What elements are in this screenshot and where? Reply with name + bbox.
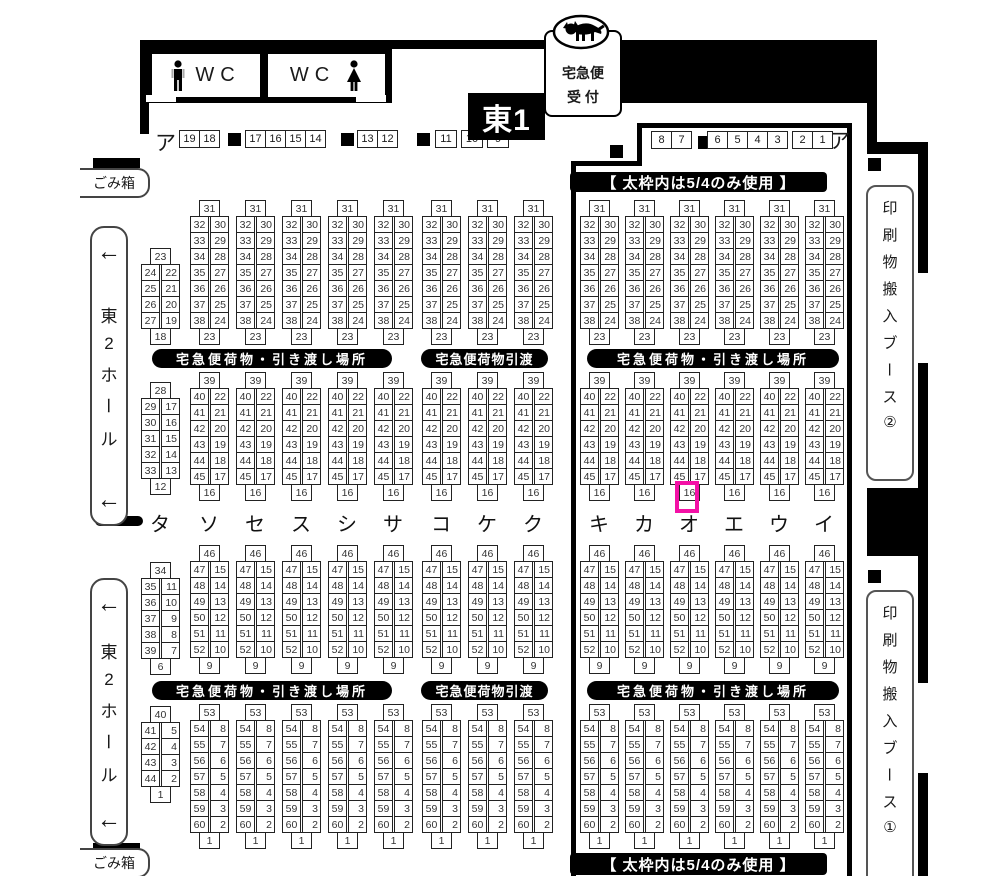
wc-room-women: WC bbox=[268, 54, 385, 97]
booth-cell: 15 bbox=[600, 561, 619, 578]
booth-cell: 38 bbox=[625, 312, 644, 329]
booth-cell: 27 bbox=[141, 312, 160, 329]
thick-frame-top bbox=[637, 123, 852, 128]
left-arrow-icon: ← bbox=[97, 484, 121, 516]
column-label: ケ bbox=[477, 508, 497, 537]
booth-cell: 56 bbox=[190, 752, 209, 769]
booth-cell: 37 bbox=[374, 296, 393, 313]
booth-cell: 19 bbox=[735, 436, 754, 453]
booth-cell: 37 bbox=[328, 296, 347, 313]
booth-cell: 45 bbox=[282, 468, 301, 485]
booth-cell: 30 bbox=[534, 216, 553, 233]
booth-cell: 7 bbox=[645, 736, 664, 753]
booth-cell: 28 bbox=[210, 248, 229, 265]
row-a-separator bbox=[417, 133, 430, 146]
booth-cell: 10 bbox=[348, 641, 367, 658]
booth-cell: 50 bbox=[760, 609, 779, 626]
booth-cell-bottom: 23 bbox=[383, 328, 404, 345]
booth-cell: 13 bbox=[645, 593, 664, 610]
booth-cell: 24 bbox=[141, 264, 160, 281]
booth-cell: 11 bbox=[690, 625, 709, 642]
booth-cell: 31 bbox=[141, 430, 160, 447]
booth-cell: 15 bbox=[161, 430, 180, 447]
booth-cell: 33 bbox=[760, 232, 779, 249]
booth-cell: 28 bbox=[256, 248, 275, 265]
booth-cell: 11 bbox=[394, 625, 413, 642]
booth-cell: 22 bbox=[645, 388, 664, 405]
booth-cell: 57 bbox=[328, 768, 347, 785]
booth-cell: 8 bbox=[256, 720, 275, 737]
booth-cell: 28 bbox=[645, 248, 664, 265]
booth-cell: 20 bbox=[302, 420, 321, 437]
booth-cell: 57 bbox=[422, 768, 441, 785]
booth-cell: 44 bbox=[514, 452, 533, 469]
row-a-right-group-1: 87 bbox=[652, 131, 692, 149]
booth-cell: 60 bbox=[670, 816, 689, 833]
booth-cell: 54 bbox=[580, 720, 599, 737]
booth-cell: 25 bbox=[645, 296, 664, 313]
column-label: ス bbox=[291, 508, 311, 537]
booth-cell: 18 bbox=[302, 452, 321, 469]
booth-cell: 26 bbox=[534, 280, 553, 297]
booth-cell: 11 bbox=[780, 625, 799, 642]
booth-cell: 44 bbox=[715, 452, 734, 469]
booth-cell: 5 bbox=[348, 768, 367, 785]
booth-cell: 7 bbox=[690, 736, 709, 753]
booth-cell: 47 bbox=[374, 561, 393, 578]
booth-cell: 29 bbox=[141, 398, 160, 415]
booth-cell: 17 bbox=[645, 468, 664, 485]
booth-cell-bottom: 1 bbox=[383, 832, 404, 849]
booth-cell: 55 bbox=[805, 736, 824, 753]
booth-cell-bottom: 23 bbox=[337, 328, 358, 345]
booth-cell: 30 bbox=[780, 216, 799, 233]
booth-cell: 38 bbox=[670, 312, 689, 329]
booth-cell: 12 bbox=[442, 609, 461, 626]
booth-cell: 20 bbox=[690, 420, 709, 437]
booth-cell: 19 bbox=[534, 436, 553, 453]
pillar-right-mid bbox=[868, 570, 881, 583]
wc-door-left bbox=[146, 95, 176, 102]
booth-cell: 13 bbox=[210, 593, 229, 610]
booth-cell: 55 bbox=[715, 736, 734, 753]
booth-cell: 15 bbox=[488, 561, 507, 578]
booth-cell: 60 bbox=[805, 816, 824, 833]
booth-cell: 11 bbox=[256, 625, 275, 642]
hall-title: 東1 bbox=[468, 93, 545, 140]
booth-cell: 24 bbox=[348, 312, 367, 329]
booth-cell: 17 bbox=[302, 468, 321, 485]
booth-cell: 55 bbox=[328, 736, 347, 753]
booth-cell: 2 bbox=[488, 816, 507, 833]
booth-cell: 8 bbox=[780, 720, 799, 737]
booth-cell: 7 bbox=[161, 642, 180, 659]
booth-cell: 58 bbox=[282, 784, 301, 801]
booth-cell: 40 bbox=[236, 388, 255, 405]
delivery-bar-mid-top: 宅急便荷物引渡 bbox=[421, 349, 548, 368]
booth-cell-top: 53 bbox=[431, 704, 452, 721]
booth-cell-bottom: 16 bbox=[634, 484, 655, 501]
booth-cell-bottom: 23 bbox=[523, 328, 544, 345]
booth-cell: 2 bbox=[780, 816, 799, 833]
booth-cell: 55 bbox=[422, 736, 441, 753]
booth-cell: 59 bbox=[514, 800, 533, 817]
booth-cell: 21 bbox=[534, 404, 553, 421]
booth-cell: 56 bbox=[805, 752, 824, 769]
left-arrow-icon: ← bbox=[97, 588, 121, 620]
booth-cell: 35 bbox=[625, 264, 644, 281]
booth-cell: 60 bbox=[328, 816, 347, 833]
booth-cell: 26 bbox=[442, 280, 461, 297]
booth-cell: 45 bbox=[468, 468, 487, 485]
booth-cell: 60 bbox=[760, 816, 779, 833]
booth-cell: 11 bbox=[735, 625, 754, 642]
booth-cell: 42 bbox=[422, 420, 441, 437]
booth-cell: 15 bbox=[690, 561, 709, 578]
black-cat-logo bbox=[551, 12, 611, 52]
booth-cell: 44 bbox=[670, 452, 689, 469]
row-a-cell: 17 bbox=[245, 130, 266, 148]
booth-cell: 13 bbox=[735, 593, 754, 610]
booth-cell: 54 bbox=[282, 720, 301, 737]
row-a-separator bbox=[341, 133, 354, 146]
booth-cell: 22 bbox=[600, 388, 619, 405]
booth-cell: 24 bbox=[735, 312, 754, 329]
booth-cell: 54 bbox=[805, 720, 824, 737]
booth-cell: 57 bbox=[670, 768, 689, 785]
booth-cell: 59 bbox=[468, 800, 487, 817]
booth-cell: 21 bbox=[780, 404, 799, 421]
booth-cell: 59 bbox=[282, 800, 301, 817]
booth-cell-top: 46 bbox=[523, 545, 544, 562]
booth-cell-bottom: 23 bbox=[477, 328, 498, 345]
booth-cell-bottom: 1 bbox=[679, 832, 700, 849]
booth-cell: 45 bbox=[580, 468, 599, 485]
trash-label-top: ごみ箱 bbox=[80, 168, 150, 198]
booth-cell: 36 bbox=[190, 280, 209, 297]
booth-cell: 20 bbox=[488, 420, 507, 437]
sign-char: 入 bbox=[882, 710, 897, 731]
booth-cell: 28 bbox=[825, 248, 844, 265]
booth-cell: 45 bbox=[374, 468, 393, 485]
booth-cell: 3 bbox=[825, 800, 844, 817]
booth-cell: 24 bbox=[394, 312, 413, 329]
booth-cell: 48 bbox=[625, 577, 644, 594]
sign-char: 2 bbox=[104, 334, 113, 354]
booth-cell: 38 bbox=[580, 312, 599, 329]
booth-cell: 17 bbox=[600, 468, 619, 485]
booth-cell: 20 bbox=[442, 420, 461, 437]
sign-char: 入 bbox=[882, 305, 897, 326]
booth-cell: 49 bbox=[760, 593, 779, 610]
booth-cell: 7 bbox=[600, 736, 619, 753]
booth-cell: 12 bbox=[348, 609, 367, 626]
booth-cell: 59 bbox=[625, 800, 644, 817]
print-booth-2-sign: 印刷物搬入ブース② bbox=[866, 185, 914, 481]
booth-cell-bottom: 23 bbox=[291, 328, 312, 345]
booth-cell: 57 bbox=[282, 768, 301, 785]
booth-cell: 37 bbox=[580, 296, 599, 313]
booth-cell: 59 bbox=[715, 800, 734, 817]
booth-cell: 39 bbox=[141, 642, 160, 659]
booth-cell: 10 bbox=[302, 641, 321, 658]
booth-cell: 48 bbox=[670, 577, 689, 594]
booth-cell: 3 bbox=[256, 800, 275, 817]
booth-cell: 17 bbox=[825, 468, 844, 485]
booth-cell: 60 bbox=[236, 816, 255, 833]
booth-cell: 35 bbox=[328, 264, 347, 281]
booth-cell: 49 bbox=[625, 593, 644, 610]
booth-cell-top: 39 bbox=[679, 372, 700, 389]
booth-cell: 19 bbox=[645, 436, 664, 453]
booth-cell: 15 bbox=[394, 561, 413, 578]
booth-cell-top: 31 bbox=[245, 200, 266, 217]
booth-cell: 21 bbox=[825, 404, 844, 421]
booth-cell: 38 bbox=[715, 312, 734, 329]
booth-cell: 42 bbox=[715, 420, 734, 437]
booth-cell: 22 bbox=[735, 388, 754, 405]
booth-cell-bottom: 1 bbox=[814, 832, 835, 849]
booth-cell: 6 bbox=[600, 752, 619, 769]
booth-cell: 58 bbox=[468, 784, 487, 801]
booth-cell-bottom: 9 bbox=[291, 657, 312, 674]
booth-cell: 18 bbox=[256, 452, 275, 469]
booth-cell: 19 bbox=[825, 436, 844, 453]
booth-cell: 4 bbox=[600, 784, 619, 801]
booth-cell: 17 bbox=[394, 468, 413, 485]
booth-cell: 60 bbox=[580, 816, 599, 833]
booth-cell: 50 bbox=[328, 609, 347, 626]
booth-cell-bottom: 16 bbox=[245, 484, 266, 501]
booth-cell-bottom: 16 bbox=[477, 484, 498, 501]
booth-cell: 6 bbox=[442, 752, 461, 769]
booth-cell: 35 bbox=[760, 264, 779, 281]
booth-cell: 43 bbox=[805, 436, 824, 453]
booth-cell: 21 bbox=[302, 404, 321, 421]
booth-cell: 33 bbox=[580, 232, 599, 249]
row-a-right-group-3: 21 bbox=[793, 131, 833, 149]
booth-cell: 5 bbox=[161, 722, 180, 739]
booth-cell: 57 bbox=[760, 768, 779, 785]
booth-cell: 4 bbox=[735, 784, 754, 801]
booth-cell: 21 bbox=[488, 404, 507, 421]
booth-cell: 12 bbox=[690, 609, 709, 626]
booth-cell: 29 bbox=[600, 232, 619, 249]
booth-cell: 20 bbox=[825, 420, 844, 437]
door-right-lower bbox=[916, 683, 930, 773]
sign-char: 物 bbox=[882, 656, 897, 677]
booth-cell: 13 bbox=[488, 593, 507, 610]
delivery-bar-left-top: 宅急便荷物・引き渡し場所 bbox=[152, 349, 392, 368]
booth-cell-bottom: 9 bbox=[199, 657, 220, 674]
booth-cell: 5 bbox=[735, 768, 754, 785]
booth-cell: 47 bbox=[715, 561, 734, 578]
booth-cell-bottom: 16 bbox=[523, 484, 544, 501]
booth-cell: 13 bbox=[534, 593, 553, 610]
booth-cell: 43 bbox=[374, 436, 393, 453]
booth-cell: 18 bbox=[735, 452, 754, 469]
booth-cell: 58 bbox=[374, 784, 393, 801]
booth-cell: 48 bbox=[236, 577, 255, 594]
booth-cell-top: 46 bbox=[589, 545, 610, 562]
booth-cell: 57 bbox=[190, 768, 209, 785]
booth-cell: 43 bbox=[236, 436, 255, 453]
booth-cell: 49 bbox=[328, 593, 347, 610]
booth-cell: 51 bbox=[374, 625, 393, 642]
booth-cell: 29 bbox=[780, 232, 799, 249]
booth-cell: 5 bbox=[488, 768, 507, 785]
booth-cell: 38 bbox=[422, 312, 441, 329]
booth-cell: 24 bbox=[690, 312, 709, 329]
booth-cell: 40 bbox=[760, 388, 779, 405]
booth-cell: 35 bbox=[580, 264, 599, 281]
frame-notice-bottom: 【 太枠内は5/4のみ使用 】 bbox=[570, 853, 827, 875]
booth-cell: 27 bbox=[348, 264, 367, 281]
booth-cell: 42 bbox=[468, 420, 487, 437]
booth-cell: 25 bbox=[442, 296, 461, 313]
sign-char: ブ bbox=[882, 332, 897, 353]
booth-cell: 8 bbox=[488, 720, 507, 737]
booth-cell: 36 bbox=[141, 594, 160, 611]
booth-cell: 7 bbox=[780, 736, 799, 753]
booth-cell: 19 bbox=[780, 436, 799, 453]
booth-cell-bottom: 9 bbox=[769, 657, 790, 674]
booth-cell: 22 bbox=[302, 388, 321, 405]
booth-cell: 34 bbox=[514, 248, 533, 265]
booth-cell: 32 bbox=[236, 216, 255, 233]
column-label: イ bbox=[814, 508, 834, 537]
booth-cell: 21 bbox=[645, 404, 664, 421]
booth-cell: 14 bbox=[780, 577, 799, 594]
booth-cell: 44 bbox=[141, 770, 160, 787]
booth-cell: 10 bbox=[690, 641, 709, 658]
booth-cell-bottom: 23 bbox=[245, 328, 266, 345]
booth-cell: 3 bbox=[394, 800, 413, 817]
thick-frame-right bbox=[847, 123, 852, 876]
booth-cell: 56 bbox=[580, 752, 599, 769]
booth-cell: 3 bbox=[645, 800, 664, 817]
booth-cell: 40 bbox=[805, 388, 824, 405]
booth-cell: 24 bbox=[825, 312, 844, 329]
booth-cell: 49 bbox=[805, 593, 824, 610]
booth-cell: 8 bbox=[394, 720, 413, 737]
booth-cell: 35 bbox=[670, 264, 689, 281]
booth-cell: 40 bbox=[625, 388, 644, 405]
booth-cell: 54 bbox=[468, 720, 487, 737]
booth-cell: 54 bbox=[236, 720, 255, 737]
booth-cell: 6 bbox=[488, 752, 507, 769]
booth-cell: 11 bbox=[348, 625, 367, 642]
wall-right-upper-h bbox=[867, 142, 928, 154]
booth-cell: 17 bbox=[256, 468, 275, 485]
booth-cell: 2 bbox=[825, 816, 844, 833]
booth-cell: 38 bbox=[760, 312, 779, 329]
row-a-cell: 8 bbox=[651, 131, 672, 149]
booth-cell: 40 bbox=[190, 388, 209, 405]
booth-cell: 8 bbox=[210, 720, 229, 737]
print-booth-2-label: 印刷物搬入ブース② bbox=[882, 197, 897, 431]
booth-cell: 41 bbox=[670, 404, 689, 421]
booth-cell-top: 53 bbox=[383, 704, 404, 721]
booth-cell: 48 bbox=[190, 577, 209, 594]
booth-cell: 57 bbox=[715, 768, 734, 785]
booth-cell: 6 bbox=[210, 752, 229, 769]
booth-cell: 7 bbox=[534, 736, 553, 753]
booth-cell: 38 bbox=[374, 312, 393, 329]
booth-cell: 2 bbox=[690, 816, 709, 833]
booth-cell: 51 bbox=[190, 625, 209, 642]
booth-cell: 24 bbox=[488, 312, 507, 329]
booth-cell: 58 bbox=[236, 784, 255, 801]
booth-cell: 15 bbox=[210, 561, 229, 578]
left-arrow-icon: ← bbox=[97, 236, 121, 268]
booth-cell: 38 bbox=[190, 312, 209, 329]
booth-cell: 32 bbox=[805, 216, 824, 233]
booth-cell: 33 bbox=[805, 232, 824, 249]
booth-cell: 21 bbox=[394, 404, 413, 421]
booth-cell: 17 bbox=[161, 398, 180, 415]
booth-cell: 33 bbox=[282, 232, 301, 249]
booth-cell: 34 bbox=[580, 248, 599, 265]
booth-cell: 22 bbox=[690, 388, 709, 405]
booth-cell: 22 bbox=[348, 388, 367, 405]
booth-cell: 27 bbox=[442, 264, 461, 281]
booth-cell: 41 bbox=[468, 404, 487, 421]
booth-cell: 11 bbox=[600, 625, 619, 642]
booth-cell: 14 bbox=[690, 577, 709, 594]
booth-cell: 21 bbox=[735, 404, 754, 421]
booth-cell: 30 bbox=[256, 216, 275, 233]
booth-cell-bottom: 1 bbox=[291, 832, 312, 849]
booth-cell: 20 bbox=[210, 420, 229, 437]
booth-cell: 26 bbox=[600, 280, 619, 297]
booth-cell-top: 40 bbox=[150, 706, 171, 723]
delivery-bar-right-top: 宅急便荷物・引き渡し場所 bbox=[587, 349, 839, 368]
booth-cell: 7 bbox=[302, 736, 321, 753]
booth-cell: 4 bbox=[302, 784, 321, 801]
booth-cell: 15 bbox=[780, 561, 799, 578]
booth-cell: 38 bbox=[282, 312, 301, 329]
booth-cell: 60 bbox=[374, 816, 393, 833]
booth-cell-top: 39 bbox=[769, 372, 790, 389]
booth-cell-bottom: 1 bbox=[634, 832, 655, 849]
row-a-label-left: ア bbox=[155, 127, 176, 157]
booth-cell: 41 bbox=[328, 404, 347, 421]
booth-cell: 37 bbox=[468, 296, 487, 313]
booth-cell: 40 bbox=[328, 388, 347, 405]
booth-cell-top: 39 bbox=[291, 372, 312, 389]
booth-cell: 56 bbox=[625, 752, 644, 769]
booth-cell: 27 bbox=[302, 264, 321, 281]
booth-cell: 18 bbox=[600, 452, 619, 469]
booth-cell: 32 bbox=[514, 216, 533, 233]
booth-cell: 33 bbox=[422, 232, 441, 249]
booth-cell: 32 bbox=[190, 216, 209, 233]
booth-cell: 34 bbox=[715, 248, 734, 265]
booth-cell: 14 bbox=[645, 577, 664, 594]
booth-cell: 30 bbox=[488, 216, 507, 233]
booth-cell-bottom: 16 bbox=[337, 484, 358, 501]
booth-cell: 52 bbox=[422, 641, 441, 658]
booth-cell: 58 bbox=[328, 784, 347, 801]
column-label: ク bbox=[523, 508, 543, 537]
booth-cell: 10 bbox=[161, 594, 180, 611]
booth-cell: 2 bbox=[348, 816, 367, 833]
booth-cell-bottom: 9 bbox=[814, 657, 835, 674]
left-arrow-icon: ← bbox=[97, 804, 121, 836]
booth-cell: 7 bbox=[825, 736, 844, 753]
booth-cell-bottom: 23 bbox=[814, 328, 835, 345]
